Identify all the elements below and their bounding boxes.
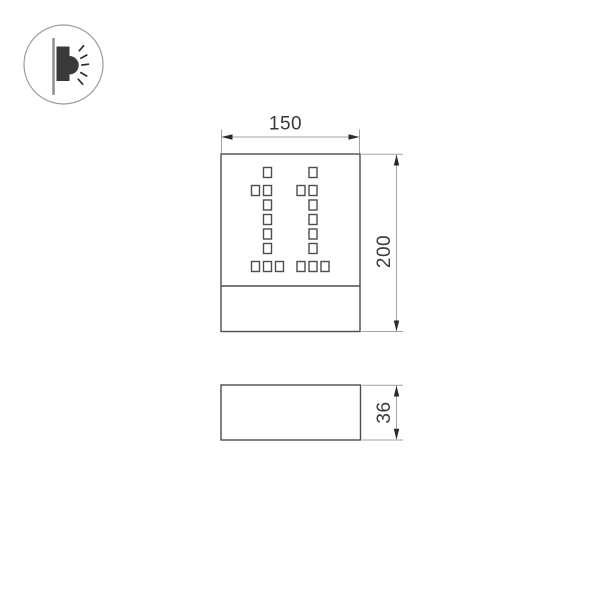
wall-light-icon (24, 25, 103, 104)
front-view-outline (221, 154, 360, 332)
arrowhead-up-icon (394, 155, 399, 166)
dimension-depth: 36 (362, 385, 403, 440)
height-dimension-label: 200 (374, 235, 395, 268)
arrowhead-left-icon (222, 134, 233, 139)
cutout-pattern-digit-1 (252, 168, 284, 272)
dimension-width: 150 (222, 114, 360, 154)
side-view (221, 385, 361, 440)
front-view (221, 154, 360, 332)
cutout-pattern-digit-2 (297, 168, 329, 272)
side-view-outline (221, 385, 361, 440)
width-dimension-label: 150 (269, 114, 302, 135)
dimension-drawing: 150 200 36 (0, 0, 605, 605)
arrowhead-right-icon (349, 134, 360, 139)
dimension-height: 200 (362, 154, 404, 331)
luminaire-body (57, 47, 70, 82)
arrowhead-up-icon (394, 386, 399, 397)
arrowhead-down-icon (394, 429, 399, 440)
technical-drawing-page: 150 200 36 (0, 0, 605, 605)
depth-dimension-label: 36 (374, 401, 395, 423)
arrowhead-down-icon (394, 321, 399, 332)
